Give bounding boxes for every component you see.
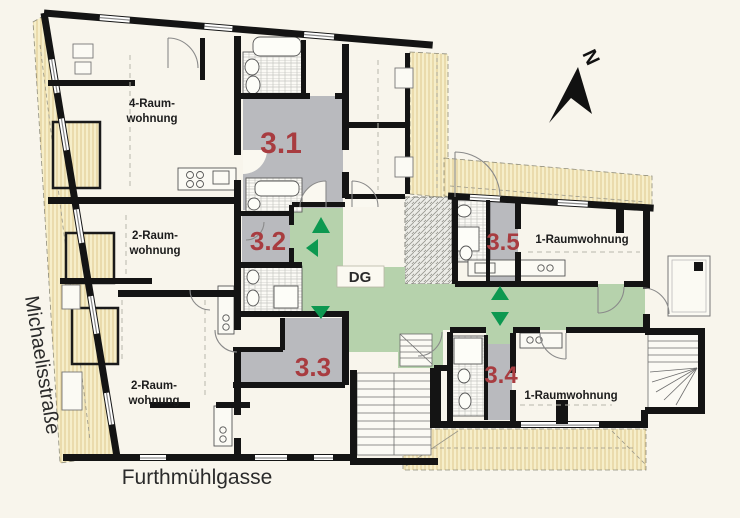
staircase-main [357,373,431,455]
void-hatch-area [405,197,455,284]
toilet-icon [246,76,260,94]
unit-number-3-3: 3.3 [295,352,331,382]
apartment-label: wohnung [125,113,177,125]
window-bay [395,157,413,177]
floor-plan: DG 3.1 3.2 3.3 3.4 3.5 4-Raum- wohnung 2… [0,0,740,518]
east-balcony [668,256,710,316]
staircase-top-flight [400,334,432,366]
chimney-square [694,262,703,271]
toilet-icon [247,290,259,306]
bathtub-icon [253,37,301,56]
roof-strip-bottom [403,429,646,470]
apartment-label: 4-Raum- [129,98,175,110]
apartment-label: 2-Raum- [131,380,177,392]
toilet-icon [460,246,472,260]
shower-icon [454,338,482,364]
unit-number-3-4: 3.4 [484,362,518,389]
sink-icon [248,198,260,210]
street-label-furthmuehlgasse: Furthmühlgasse [122,466,273,489]
apartment-label: 2-Raum- [132,230,178,242]
sink-icon [458,369,470,383]
toilet-icon [459,393,471,409]
kitchen-counter [214,406,232,446]
unit-number-3-5: 3.5 [486,229,519,256]
sink-icon [245,59,259,75]
apartment-label: 1-Raumwohnung [535,234,628,246]
level-badge-label: DG [349,269,372,286]
level-badge: DG [337,266,384,287]
staircase-east [648,334,700,408]
unit-number-3-1: 3.1 [260,127,302,160]
unit-number-3-2: 3.2 [250,226,286,256]
apartment-label: wohnung [127,395,179,407]
floor-plan-page: DG 3.1 3.2 3.3 3.4 3.5 4-Raum- wohnung 2… [0,0,740,518]
apartment-label: wohnung [128,245,180,257]
apartment-label: 1-Raumwohnung [524,390,617,402]
window-bay [62,372,82,410]
bathtub-icon [255,181,299,196]
sink-icon [457,205,471,217]
window-bay [395,68,413,88]
window-bay [62,285,80,309]
window-bay [73,44,93,58]
shower-icon [274,286,298,308]
sink-icon [247,270,259,284]
roof-strip-right-vertical [410,52,448,198]
window-bay [75,62,91,74]
